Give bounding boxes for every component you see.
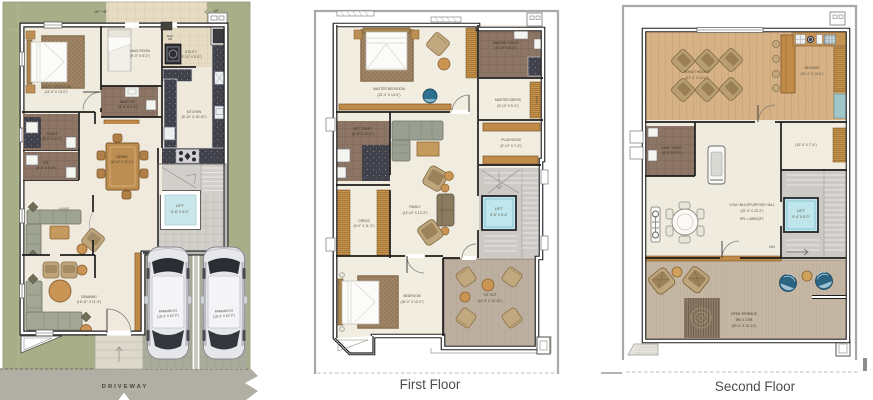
svg-text:(9'-10" X 6'-0"): (9'-10" X 6'-0") (180, 55, 201, 59)
svg-text:GYM / MULTIPURPOSE HALL: GYM / MULTIPURPOSE HALL (729, 203, 774, 207)
svg-text:(17'-4" X 14'-0"): (17'-4" X 14'-0") (685, 76, 708, 80)
svg-text:(9'-10" X 8'-0"): (9'-10" X 8'-0") (495, 46, 516, 50)
svg-text:(10'-4" X 7'-4"): (10'-4" X 7'-4") (795, 143, 816, 147)
svg-text:FAMILY: FAMILY (409, 205, 421, 209)
svg-text:(22'-4" X 22'-2"): (22'-4" X 22'-2") (740, 209, 763, 213)
svg-text:TOILET: TOILET (46, 132, 57, 136)
svg-text:DRESS: DRESS (358, 219, 370, 223)
svg-text:DRIVEWAY: DRIVEWAY (102, 384, 148, 390)
svg-text:(14'-0" X 12'-10"): (14'-0" X 12'-10") (478, 299, 503, 303)
svg-text:UP: UP (95, 10, 101, 14)
svg-text:990 X 1795: 990 X 1795 (736, 318, 753, 322)
svg-text:9'-4" X 5'-0": 9'-4" X 5'-0" (792, 215, 810, 219)
svg-text:(9'-10" X 15'-10"): (9'-10" X 15'-10") (182, 115, 207, 119)
svg-text:(9'-0" X 8'-0"): (9'-0" X 8'-0") (130, 54, 149, 58)
svg-text:LIFT: LIFT (495, 206, 504, 211)
svg-text:6'-8" X 5'-0": 6'-8" X 5'-0" (171, 210, 189, 214)
svg-text:(10'-6" X 11'-2"): (10'-6" X 11'-2") (111, 160, 134, 164)
svg-text:RM: RM (168, 37, 172, 41)
svg-text:(16'-0" X 12'-0"): (16'-0" X 12'-0") (400, 300, 423, 304)
svg-text:LIFT: LIFT (797, 208, 806, 213)
svg-text:(10'-4" X 14'-0"): (10'-4" X 14'-0") (800, 72, 823, 76)
svg-text:(9'-10" X 5'-4"): (9'-10" X 5'-4") (497, 104, 518, 108)
svg-text:(30'-0" X 13'-11"): (30'-0" X 13'-11") (732, 324, 757, 328)
svg-text:First Floor: First Floor (400, 377, 461, 392)
svg-text:(6'-0" X 8'-0"): (6'-0" X 8'-0") (662, 151, 681, 155)
svg-text:LIFT: LIFT (176, 203, 185, 208)
svg-text:P.R.: P.R. (43, 161, 49, 165)
svg-text:MASTER TOILET: MASTER TOILET (493, 41, 519, 45)
svg-text:Second Floor: Second Floor (715, 379, 796, 394)
svg-text:6'-8" X 5'-4": 6'-8" X 5'-4" (490, 213, 508, 217)
svg-text:MAID TOI.: MAID TOI. (120, 100, 136, 104)
svg-text:(5'-6" X 5'-0"): (5'-6" X 5'-0") (118, 105, 137, 109)
svg-text:KITCHEN: KITCHEN (187, 110, 202, 114)
svg-text:MINI BAR: MINI BAR (805, 66, 820, 70)
svg-text:(6'-0" X 5'-0"): (6'-0" X 5'-0") (36, 166, 55, 170)
svg-text:(6'-0" X 11'-2"): (6'-0" X 11'-2") (354, 224, 375, 228)
svg-text:PUJA ROOM: PUJA ROOM (501, 138, 521, 142)
svg-text:OPEN TERRACE: OPEN TERRACE (731, 312, 758, 316)
svg-text:HOME THEATRE: HOME THEATRE (684, 70, 711, 74)
svg-text:(8'-0" X 5'-0"): (8'-0" X 5'-0") (42, 137, 61, 141)
svg-text:MAID ROOM: MAID ROOM (130, 49, 150, 53)
svg-text:COM. TOILET: COM. TOILET (662, 146, 683, 150)
svg-text:SIT OUT: SIT OUT (484, 293, 497, 297)
svg-text:ATT. TOILET: ATT. TOILET (354, 127, 373, 131)
svg-text:(9'-10" X 7'-4"): (9'-10" X 7'-4") (500, 144, 521, 148)
svg-text:Dress: Dress (535, 96, 539, 104)
svg-text:(22'-4" X 14'-0"): (22'-4" X 14'-0") (377, 93, 400, 97)
svg-text:MASTER DRESS: MASTER DRESS (495, 98, 522, 102)
svg-text:(8'-8" X 10'-4"): (8'-8" X 10'-4") (352, 132, 373, 136)
svg-text:(13'-0" X 14'-0"): (13'-0" X 14'-0") (44, 90, 67, 94)
svg-text:DINING: DINING (116, 155, 128, 159)
svg-text:MASTER BEDROOM: MASTER BEDROOM (373, 87, 405, 91)
svg-text:GUEST BEDROOM: GUEST BEDROOM (41, 85, 71, 89)
svg-text:DRAWING: DRAWING (81, 295, 97, 299)
svg-text:(16'-11" X 11'-9"): (16'-11" X 11'-9") (77, 300, 101, 304)
svg-text:(13'-10" X 12'-2"): (13'-10" X 12'-2") (403, 211, 428, 215)
svg-text:UTILITY: UTILITY (185, 50, 198, 54)
svg-text:BEDROOM: BEDROOM (403, 294, 420, 298)
svg-text:SPL = 685SQFT.: SPL = 685SQFT. (740, 217, 765, 221)
svg-text:UP: UP (214, 9, 220, 13)
svg-text:DN: DN (769, 245, 775, 249)
